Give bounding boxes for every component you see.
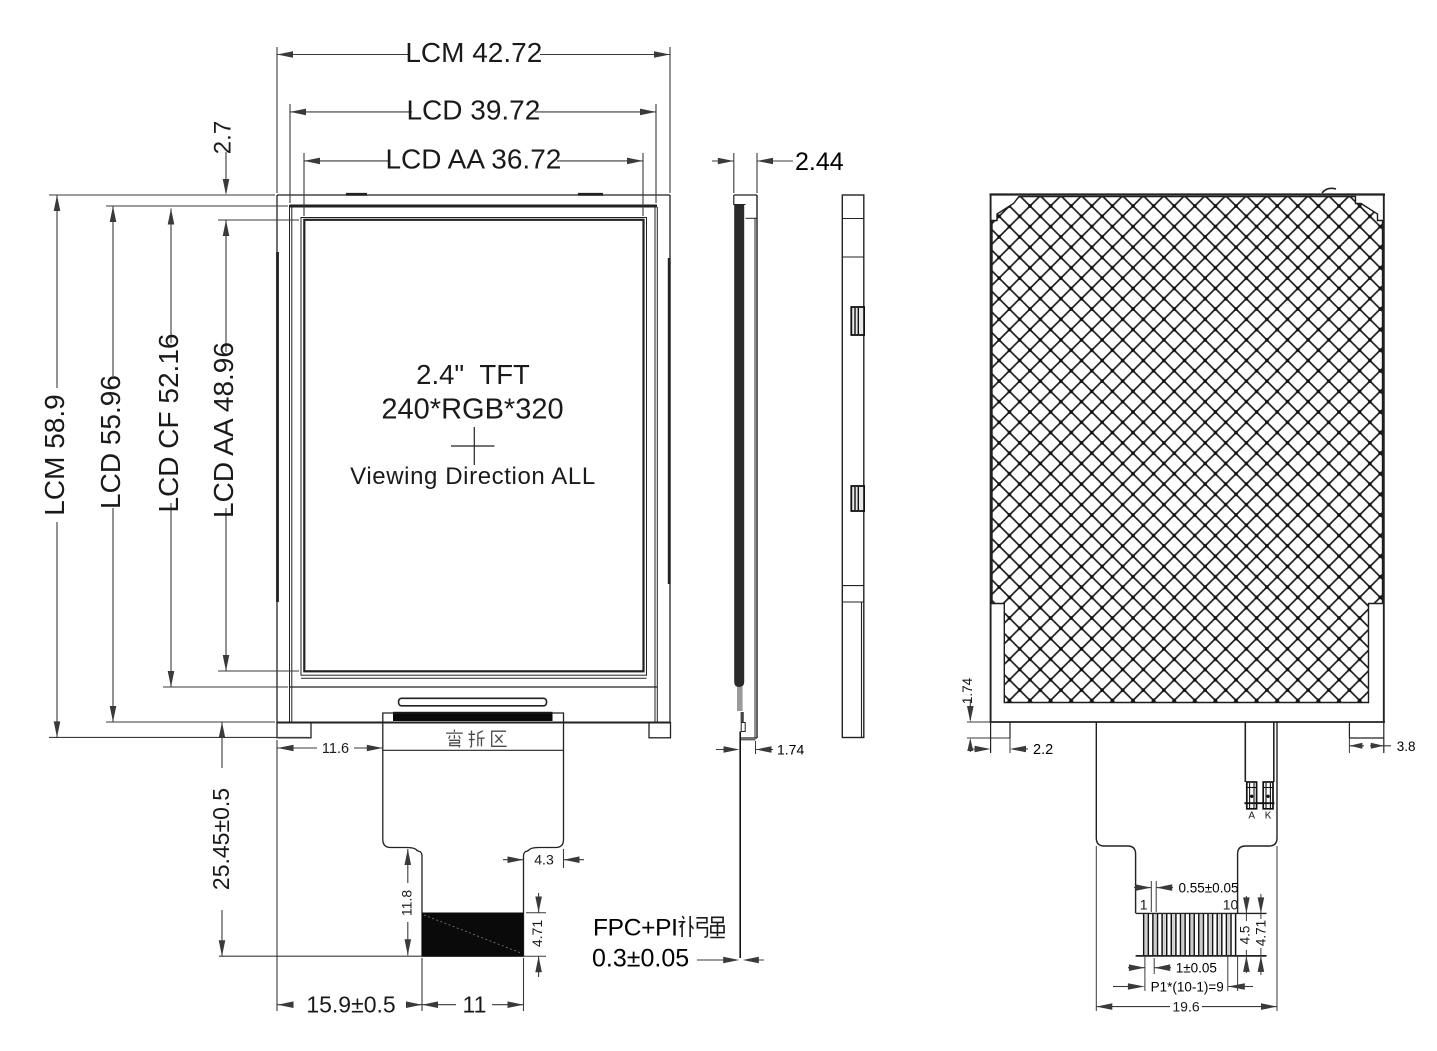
svg-text:4.71: 4.71 [1254, 920, 1269, 946]
svg-text:4.71: 4.71 [529, 920, 545, 947]
svg-text:15.9±0.5: 15.9±0.5 [306, 992, 395, 1018]
svg-text:2.4" TFT: 2.4" TFT [416, 359, 530, 390]
svg-text:25.45±0.5: 25.45±0.5 [208, 788, 234, 890]
svg-text:1±0.05: 1±0.05 [1176, 961, 1217, 976]
svg-text:11: 11 [463, 992, 487, 1018]
svg-text:240*RGB*320: 240*RGB*320 [381, 394, 563, 426]
svg-text:K: K [1265, 811, 1272, 822]
svg-text:0.55±0.05: 0.55±0.05 [1179, 881, 1239, 896]
svg-text:Viewing Direction ALL: Viewing Direction ALL [350, 463, 596, 490]
svg-text:LCD CF 52.16: LCD CF 52.16 [153, 334, 184, 513]
svg-text:FPC+PI: FPC+PI [593, 915, 678, 942]
svg-text:3.8: 3.8 [1397, 739, 1416, 754]
svg-text:2.44: 2.44 [795, 148, 844, 176]
svg-text:10: 10 [1223, 897, 1239, 913]
svg-text:A: A [1248, 811, 1255, 822]
svg-text:2.7: 2.7 [210, 121, 237, 154]
svg-text:4.5: 4.5 [1238, 926, 1253, 945]
svg-text:LCD 39.72: LCD 39.72 [406, 94, 540, 125]
svg-text:0.3±0.05: 0.3±0.05 [592, 945, 689, 973]
svg-text:LCD AA 48.96: LCD AA 48.96 [208, 342, 239, 518]
svg-text:11.6: 11.6 [322, 741, 349, 757]
svg-text:1: 1 [1140, 897, 1148, 913]
svg-text:11.8: 11.8 [399, 890, 415, 916]
svg-text:2.2: 2.2 [1033, 742, 1053, 758]
svg-text:LCD AA 36.72: LCD AA 36.72 [385, 143, 561, 174]
svg-text:1.74: 1.74 [777, 742, 804, 758]
svg-text:4.3: 4.3 [534, 852, 554, 868]
svg-text:LCM 42.72: LCM 42.72 [405, 37, 542, 68]
svg-text:1.74: 1.74 [960, 677, 975, 704]
svg-text:19.6: 19.6 [1172, 999, 1199, 1015]
svg-text:LCM 58.9: LCM 58.9 [39, 394, 70, 515]
svg-text:LCD 55.96: LCD 55.96 [95, 375, 126, 509]
svg-text:P1*(10-1)=9: P1*(10-1)=9 [1151, 980, 1224, 995]
